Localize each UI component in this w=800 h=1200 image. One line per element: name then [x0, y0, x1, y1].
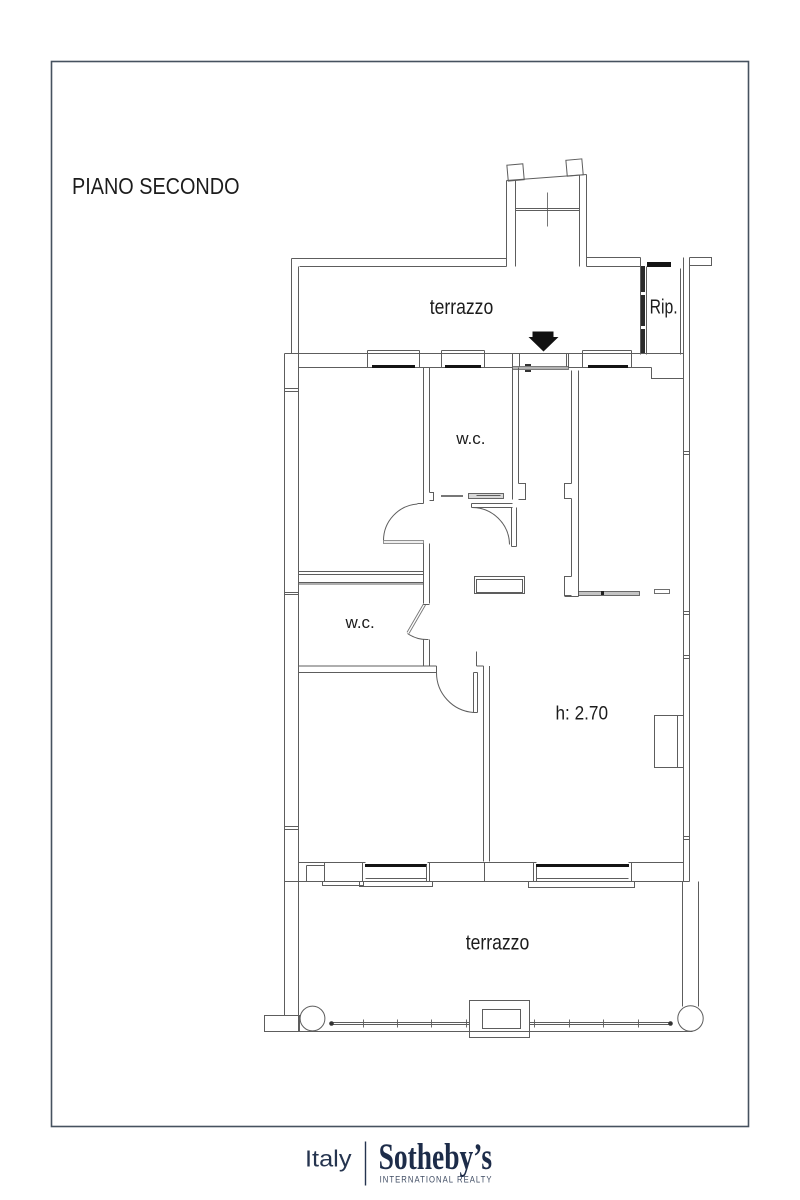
svg-text:terrazzo: terrazzo	[466, 932, 530, 955]
svg-text:Sotheby’s: Sotheby’s	[379, 1136, 493, 1177]
svg-text:h: 2.70: h: 2.70	[556, 704, 609, 725]
svg-text:w.c.: w.c.	[455, 429, 485, 448]
svg-text:terrazzo: terrazzo	[430, 296, 494, 319]
svg-text:w.c.: w.c.	[345, 613, 375, 632]
svg-text:INTERNATIONAL REALTY: INTERNATIONAL REALTY	[380, 1174, 493, 1184]
svg-text:Italy: Italy	[305, 1146, 352, 1172]
svg-text:PIANO SECONDO: PIANO SECONDO	[72, 173, 240, 199]
svg-text:Rip.: Rip.	[650, 297, 678, 319]
